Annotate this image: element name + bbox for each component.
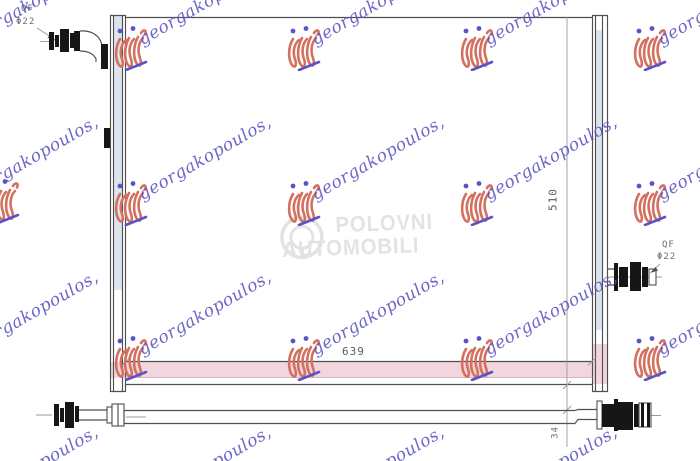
mounting-bracket — [104, 128, 110, 148]
radiator-drawing — [0, 0, 700, 461]
inlet-fitting-left — [37, 28, 110, 148]
vertical-dimension — [563, 17, 571, 447]
height-dimension-label: 510 — [548, 185, 559, 215]
outlet-fitting-diameter: Φ22 — [657, 253, 676, 262]
pipe-curve-top — [80, 31, 102, 47]
bottom-highlight-band — [110, 362, 592, 378]
outlet-fitting-code: QF — [662, 241, 675, 250]
technical-drawing-canvas: 639 510 34 QF Φ22 QF Φ22 POLOVNI AUTOMOB… — [0, 0, 700, 461]
left-tank-shading — [114, 16, 123, 290]
offset-dimension-label: 34 — [552, 423, 561, 443]
radiator-body — [110, 15, 608, 392]
inlet-fitting-diameter: Φ22 — [16, 18, 35, 27]
pipe-curve-bottom — [80, 51, 96, 62]
right-tank-shading — [596, 30, 603, 330]
short-pipe — [79, 410, 107, 420]
tube-reducer — [575, 410, 597, 424]
outlet-fitting-right — [608, 262, 662, 291]
width-dimension-label: 639 — [342, 346, 365, 357]
long-tube — [124, 411, 575, 424]
pipe-flange — [101, 44, 108, 69]
inlet-fitting-code: QF — [21, 5, 34, 14]
